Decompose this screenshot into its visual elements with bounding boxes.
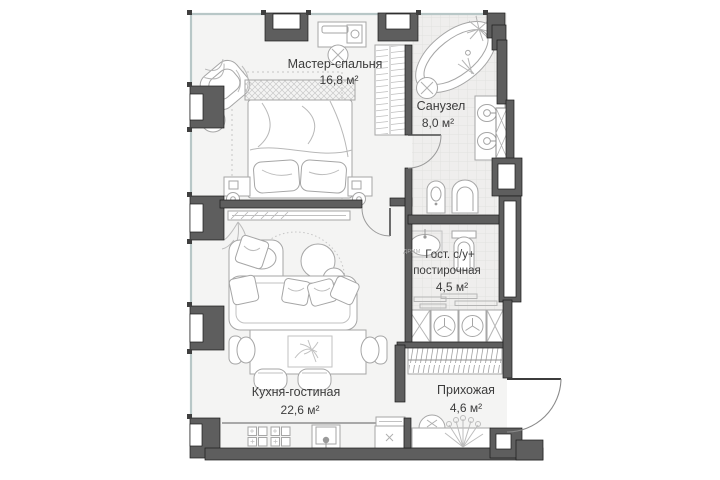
dining-table	[250, 330, 366, 374]
label-guest-wc-2: постирочная	[413, 265, 481, 277]
label-sink-note: ДРИМ	[403, 249, 421, 255]
label-guest-wc-1: Гост. с/у+	[425, 249, 475, 261]
bidet-icon	[427, 181, 445, 213]
entrance-door	[507, 379, 561, 432]
washing-machines	[409, 310, 503, 342]
vanity-desk	[318, 22, 366, 47]
floor-plan: Мастер-спальня 16,8 м² Санузел 8,0 м² Го…	[0, 0, 720, 480]
label-hallway: Прихожая	[437, 383, 495, 397]
floor-plan-drawing: Мастер-спальня 16,8 м² Санузел 8,0 м² Го…	[0, 0, 720, 480]
area-kitchen-living: 22,6 м²	[281, 403, 320, 417]
area-bathroom: 8,0 м²	[422, 116, 454, 130]
label-master-bedroom: Мастер-спальня	[288, 57, 383, 71]
coat-rack	[408, 347, 502, 374]
area-master-bedroom: 16,8 м²	[320, 73, 359, 87]
mirror-panel	[496, 108, 507, 158]
kitchen-sink-icon	[312, 425, 340, 449]
media-console	[228, 211, 350, 220]
tall-cabinet	[375, 417, 405, 449]
toilet-icon	[452, 180, 478, 213]
bed-icon	[245, 80, 355, 198]
area-guest-wc: 4,5 м²	[436, 280, 468, 294]
label-kitchen-living: Кухня-гостиная	[252, 385, 340, 399]
label-bathroom: Санузел	[417, 99, 466, 113]
area-hallway: 4,6 м²	[450, 401, 482, 415]
ceiling-light-icon	[417, 78, 438, 99]
